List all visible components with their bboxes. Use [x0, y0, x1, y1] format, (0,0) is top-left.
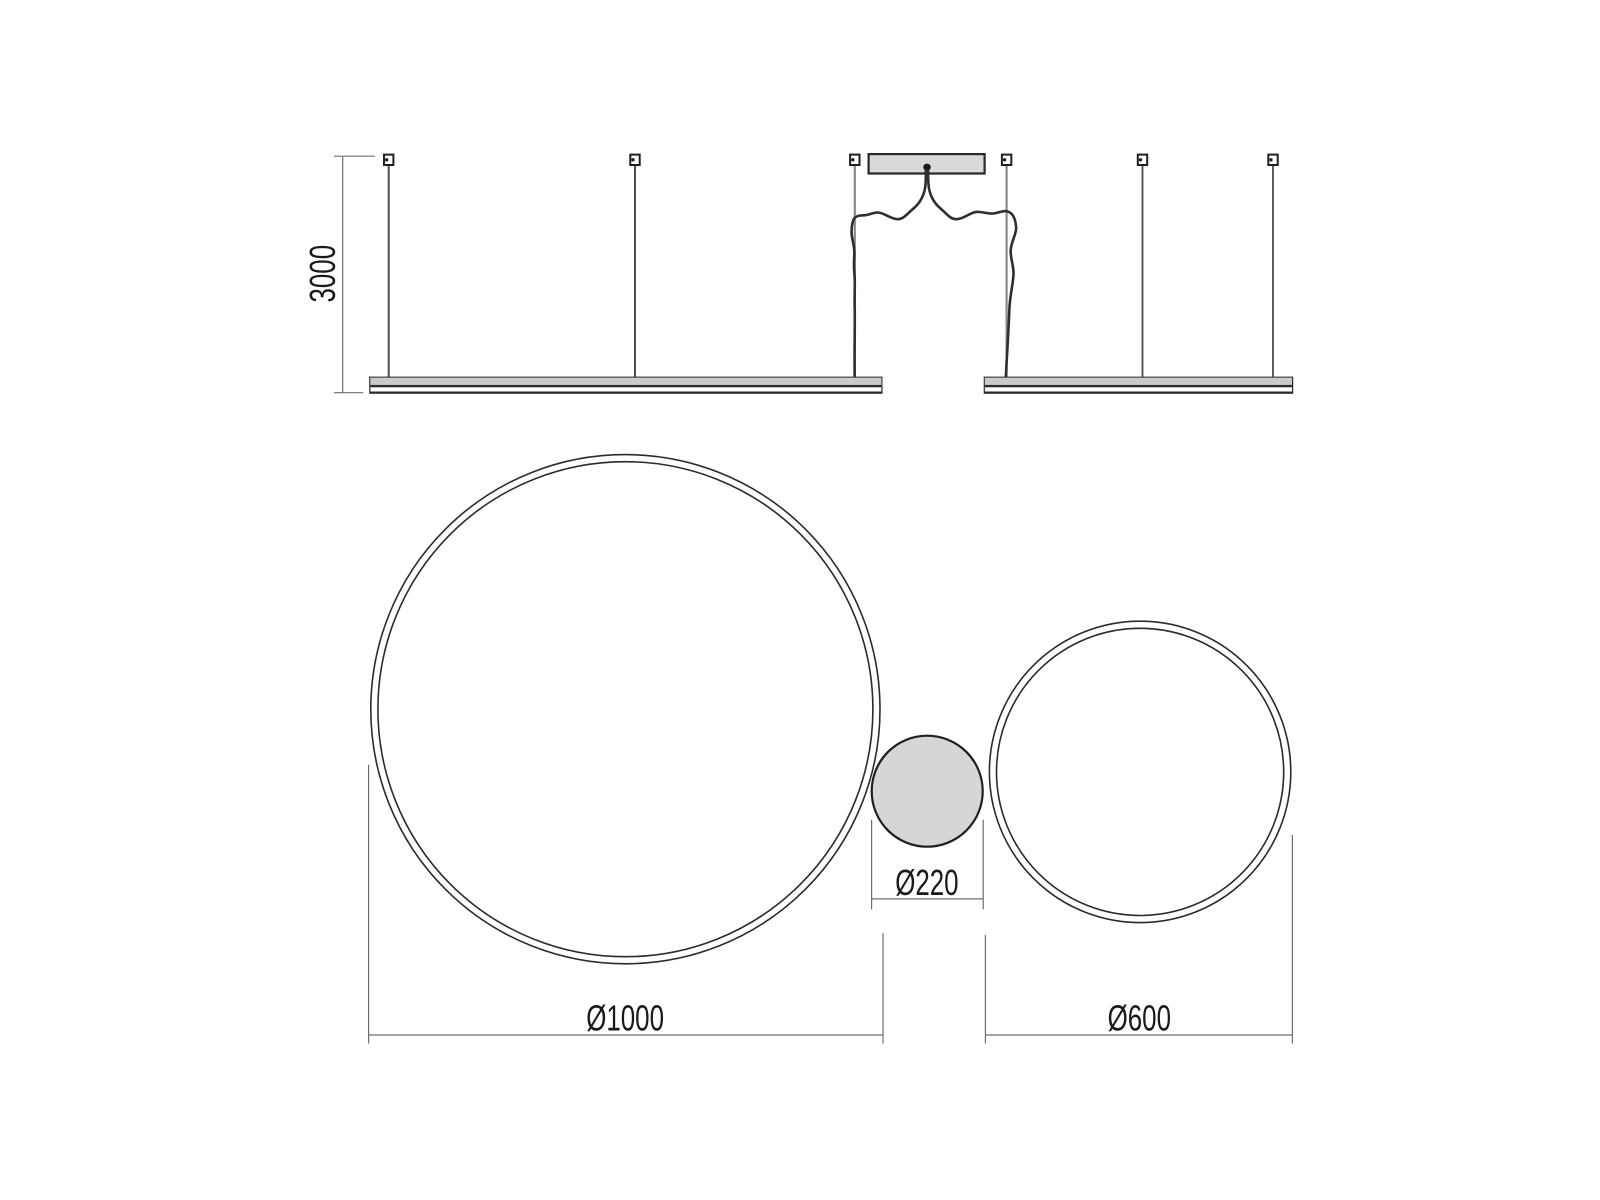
svg-text:Ø220: Ø220	[895, 863, 958, 903]
svg-text:3000: 3000	[303, 245, 343, 303]
svg-text:Ø600: Ø600	[1108, 998, 1171, 1038]
svg-text:Ø1000: Ø1000	[586, 998, 664, 1038]
